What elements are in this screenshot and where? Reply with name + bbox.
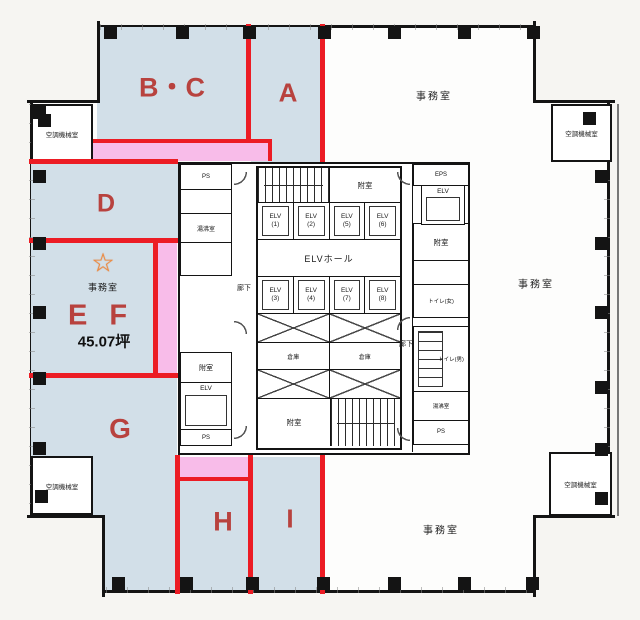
zone-label-ef: E F [68,300,134,333]
highlight-strip-ef [158,243,177,373]
corridor-opening [180,276,232,352]
staircase-top [258,168,330,202]
shaft-cross [330,314,401,342]
shaft-room: PS [180,429,232,446]
service-cells [413,260,469,286]
shaft-room: EPS [413,164,469,186]
divider-i-right [320,455,325,594]
corner-notch-top-right [533,21,615,103]
office-label-right: 事務室 [518,276,554,291]
divider-ef-g [29,373,178,378]
machine-room-label: 空調機械室 [46,481,79,491]
divider-a-right [320,24,325,162]
structural-columns [104,26,117,39]
divider-h-left [175,455,180,594]
elevator-car [185,395,227,426]
zone-label-d: D [97,190,115,219]
corner-notch-top-left [27,21,100,103]
elevator-1: ELV(1) [258,203,294,239]
vestibule-top: 附室 [330,168,400,202]
shaft-cross [330,370,401,398]
door-swing-icon [396,316,410,330]
corridor-label-right: 廊下 [399,339,413,349]
door-swing-icon [234,320,248,334]
door-swing-icon [396,428,410,442]
elevator-hall: ELVホール [258,240,400,276]
divider-d-top [29,159,178,164]
shaft-room: PS [413,420,469,445]
hot-water-room: 湯沸室 [180,213,232,243]
emergency-elevator-right: ELV [421,185,465,225]
divider-strip-top [93,139,272,143]
door-swing-icon [234,426,248,440]
elevator-car [426,197,460,221]
emergency-elevator-left: ELV [180,382,232,430]
elevator-6: ELV(6) [365,203,400,239]
star-icon: ☆ [91,248,114,279]
elevator-row-bottom: ELV(3) ELV(4) ELV(7) ELV(8) [258,276,400,314]
corner-notch-bottom-right [533,515,615,597]
machine-room-top-right: 空調機械室 [551,104,612,162]
elevator-5: ELV(5) [330,203,366,239]
machine-room-label: 空調機械室 [565,128,598,138]
office-label-bottom-right: 事務室 [423,522,459,537]
vestibule-left: 附室 [180,352,232,384]
storage-room: 倉庫 [258,343,330,369]
elevator-3: ELV(3) [258,277,294,313]
elevator-block: 附室 ELV(1) ELV(2) ELV(5) ELV(6) ELVホール EL… [256,166,402,450]
elevator-2: ELV(2) [294,203,330,239]
corridor-label-left: 廊下 [237,283,251,293]
machine-room-label: 空調機械室 [564,479,597,489]
service-core: PS 湯沸室 附室 ELV PS 附室 ELV(1) ELV(2) [178,162,470,455]
zone-label-h: H [213,507,233,538]
core-right-rooms: EPS ELV 附室 トイレ(女) トイレ(男) 湯沸室 PS [412,164,469,452]
staircase-bottom [331,399,400,446]
core-left-rooms: PS 湯沸室 附室 ELV PS [180,164,232,452]
machine-room-bottom-right: 空調機械室 [549,452,612,516]
corridor-opening [413,318,469,326]
door-swing-icon [234,172,248,186]
elevator-4: ELV(4) [294,277,330,313]
corner-notch-bottom-left [27,515,105,597]
zone-label-a: A [279,78,298,109]
shaft-cross [258,314,330,342]
elevator-8: ELV(8) [365,277,400,313]
divider-ef-right [153,238,158,377]
toilet-women: トイレ(女) [413,284,469,318]
ef-room-label: 事務室 [88,281,118,294]
machine-room-bottom-left: 空調機械室 [31,456,93,515]
machine-room-top-left: 空調機械室 [31,104,93,164]
service-room [180,242,232,276]
mullion-ticks-top [100,24,534,30]
hot-water-room: 湯沸室 [413,391,469,421]
ef-area-label: 45.07坪 [78,331,131,352]
shaft-cross [258,370,330,398]
elevator-7: ELV(7) [330,277,366,313]
storage-room: 倉庫 [330,343,401,369]
mullion-ticks-left [29,104,35,516]
vestibule-bottom: 附室 [258,399,331,446]
divider-h-i [248,455,253,594]
elevator-row-top: ELV(1) ELV(2) ELV(5) ELV(6) [258,202,400,240]
zone-label-g: G [109,413,131,445]
service-room [180,189,232,215]
door-swing-icon [396,172,410,186]
divider-strip-right [268,139,272,161]
floor-plan: 空調機械室 空調機械室 空調機械室 空調機械室 PS 湯沸室 附室 ELV PS [0,0,640,620]
zone-label-i: I [286,504,293,535]
office-label-top-right: 事務室 [416,88,452,103]
toilet-men: トイレ(男) [413,326,469,392]
divider-bc-a [246,24,251,142]
divider-strip-h-bottom [175,477,253,481]
machine-room-label: 空調機械室 [46,129,79,139]
outer-wall-line [617,104,619,516]
zone-label-bc: B・C [139,66,205,105]
shaft-room: PS [180,164,232,190]
vestibule-right: 附室 [413,223,469,261]
highlight-strip-h [177,457,250,477]
